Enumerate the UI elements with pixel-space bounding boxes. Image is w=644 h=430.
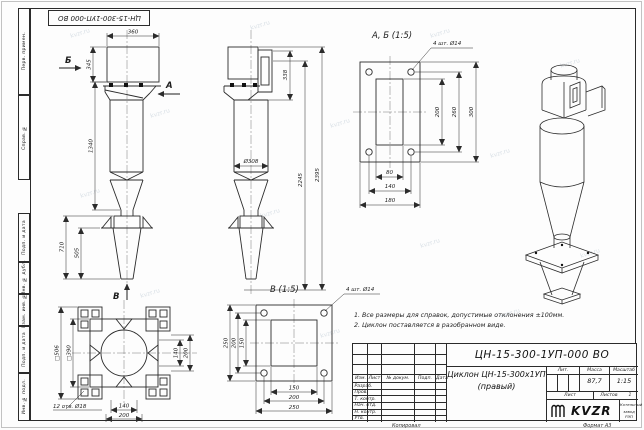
- part-name: Циклон ЦН-15-300х1УП (правый): [447, 370, 546, 391]
- dim-v-250: 250: [224, 337, 230, 348]
- dim-360: 360: [128, 30, 139, 36]
- margin-cell-inv-dubl: Инв. № дубл.: [18, 262, 30, 294]
- doc-number: ЦН-15-300-1УП-000 ВО: [446, 344, 638, 366]
- grid-line: [593, 391, 594, 399]
- logo-caption: Котельный завод РЭП: [620, 402, 638, 419]
- part-name-line2: (правый): [447, 382, 546, 391]
- scale-value: 1:15: [610, 377, 638, 385]
- dim-200: 200: [435, 106, 441, 117]
- margin-label: Инв. № дубл.: [22, 260, 27, 295]
- bottom-flange-view: □506 □390 140 200 140 200 12 отв. Ø18: [52, 298, 227, 423]
- dim-v-140: 140: [174, 347, 180, 358]
- row-tkontr: Т. контр.: [355, 397, 376, 403]
- holes-note: 12 отв. Ø18: [53, 403, 87, 410]
- margin-cell-perv-primen: Перв. примен.: [18, 8, 30, 95]
- row-razrab: Разраб.: [355, 384, 373, 390]
- scale-label: Масштаб: [610, 368, 638, 374]
- isometric-bolts: [535, 244, 589, 266]
- mass-value: 87,7: [580, 377, 609, 385]
- margin-label: Справ. №: [22, 125, 27, 150]
- margin-label: Подп. и дата: [22, 220, 27, 255]
- dim-140: 140: [385, 184, 396, 190]
- logo-caption-2: завод РЭП: [620, 409, 638, 419]
- sheet-label: Лист: [547, 393, 593, 399]
- grid-line: [353, 364, 446, 365]
- col-podp: Подп.: [415, 376, 435, 382]
- isometric-outline: [526, 65, 605, 304]
- title-block: Изм. Лист № докум. Подп. Дата Разраб. Пр…: [352, 343, 637, 421]
- col-izm: Изм.: [354, 376, 367, 382]
- row-utv: Утв.: [355, 416, 365, 422]
- grid-line: [568, 374, 569, 391]
- margin-cell-sprav: Справ. №: [18, 95, 30, 180]
- grid-line: [353, 354, 446, 355]
- dim-sq-506: □506: [55, 345, 61, 361]
- row-nkontr: Н. контр.: [355, 410, 377, 416]
- view-label-a: А: [165, 81, 173, 91]
- dim-150: 150: [289, 386, 300, 392]
- grid-line: [557, 374, 558, 391]
- side-dim-lines: [234, 47, 326, 290]
- margin-label: Подп. и дата: [22, 332, 27, 367]
- margin-label: Перв. примен.: [22, 32, 27, 70]
- dim-v-150: 150: [240, 337, 246, 348]
- coil-icon: [550, 403, 568, 419]
- view-label-b: Б: [65, 56, 72, 66]
- mass-label: Масса: [580, 368, 609, 374]
- dim-345: 345: [87, 59, 93, 70]
- dim-v-200: 200: [232, 337, 238, 348]
- dim-338: 338: [283, 69, 289, 80]
- dim-260: 260: [452, 106, 458, 117]
- logo-caption-1: Котельный: [620, 402, 638, 407]
- dim-200: 200: [119, 413, 130, 419]
- sheets-value: 1: [625, 393, 635, 399]
- front-dim-lines: [63, 33, 159, 279]
- sheets-label: Листов: [595, 393, 623, 399]
- dim-80: 80: [386, 170, 393, 176]
- lit-label: Лит.: [547, 368, 579, 374]
- holes-note: 4 шт. Ø14: [433, 40, 462, 47]
- row-prov: Пров.: [355, 390, 368, 396]
- margin-cell-podp-data-1: Подп. и дата: [18, 213, 30, 262]
- dim-v-200: 200: [184, 347, 190, 358]
- detail-ab-title: А, Б (1:5): [371, 31, 412, 41]
- dim-710: 710: [60, 241, 66, 252]
- dim-300: 300: [469, 106, 475, 117]
- view-arrows: [59, 68, 180, 300]
- detail-ab-dims: [360, 48, 479, 208]
- front-outline: [101, 47, 161, 279]
- dim-140: 140: [119, 404, 130, 410]
- footer-copied: Копировал: [392, 423, 421, 429]
- dim-sq-390: □390: [67, 345, 73, 361]
- footer-format: Формат А3: [583, 423, 611, 429]
- holes-note: 4 шт. Ø14: [346, 286, 375, 293]
- note-1: 1. Все размеры для справок, допустимые о…: [354, 312, 564, 319]
- margin-cell-vzam-inv: Взам. инв. №: [18, 294, 30, 326]
- dim-180: 180: [385, 198, 396, 204]
- margin-label: Инв. № подл.: [22, 379, 27, 415]
- margin-cell-inv-podl: Инв. № подл.: [18, 373, 30, 421]
- side-view: 338 2245 2395 Ø308: [196, 20, 346, 305]
- dim-1340: 1340: [89, 139, 95, 153]
- margin-cell-podp-data-2: Подп. и дата: [18, 326, 30, 373]
- dim-2395: 2395: [315, 168, 321, 182]
- logo-text: KVZR: [571, 404, 612, 418]
- margin-label: Взам. инв. №: [22, 293, 27, 328]
- dim-250: 250: [289, 405, 300, 411]
- drawing-sheet: kvzr.ru kvzr.ru kvzr.ru kvzr.ru kvzr.ru …: [0, 0, 644, 430]
- col-list: Лист: [368, 376, 381, 382]
- dim-505: 505: [75, 247, 81, 258]
- row-nachotd: Нач. отд.: [355, 403, 377, 409]
- col-dokum: № докум.: [382, 376, 414, 382]
- grid-line: [546, 374, 638, 375]
- isometric-view: [492, 52, 632, 302]
- dim-2245: 2245: [298, 173, 304, 187]
- col-data: Дата: [436, 376, 446, 382]
- note-2: 2. Циклон поставляется в разобранном вид…: [354, 322, 505, 329]
- dim-200: 200: [289, 395, 300, 401]
- detail-v-title: В (1:5): [270, 285, 299, 295]
- dim-dia-308: Ø308: [243, 158, 259, 165]
- part-name-line1: Циклон ЦН-15-300х1УП: [447, 370, 546, 379]
- logo-area: KVZR: [547, 399, 619, 422]
